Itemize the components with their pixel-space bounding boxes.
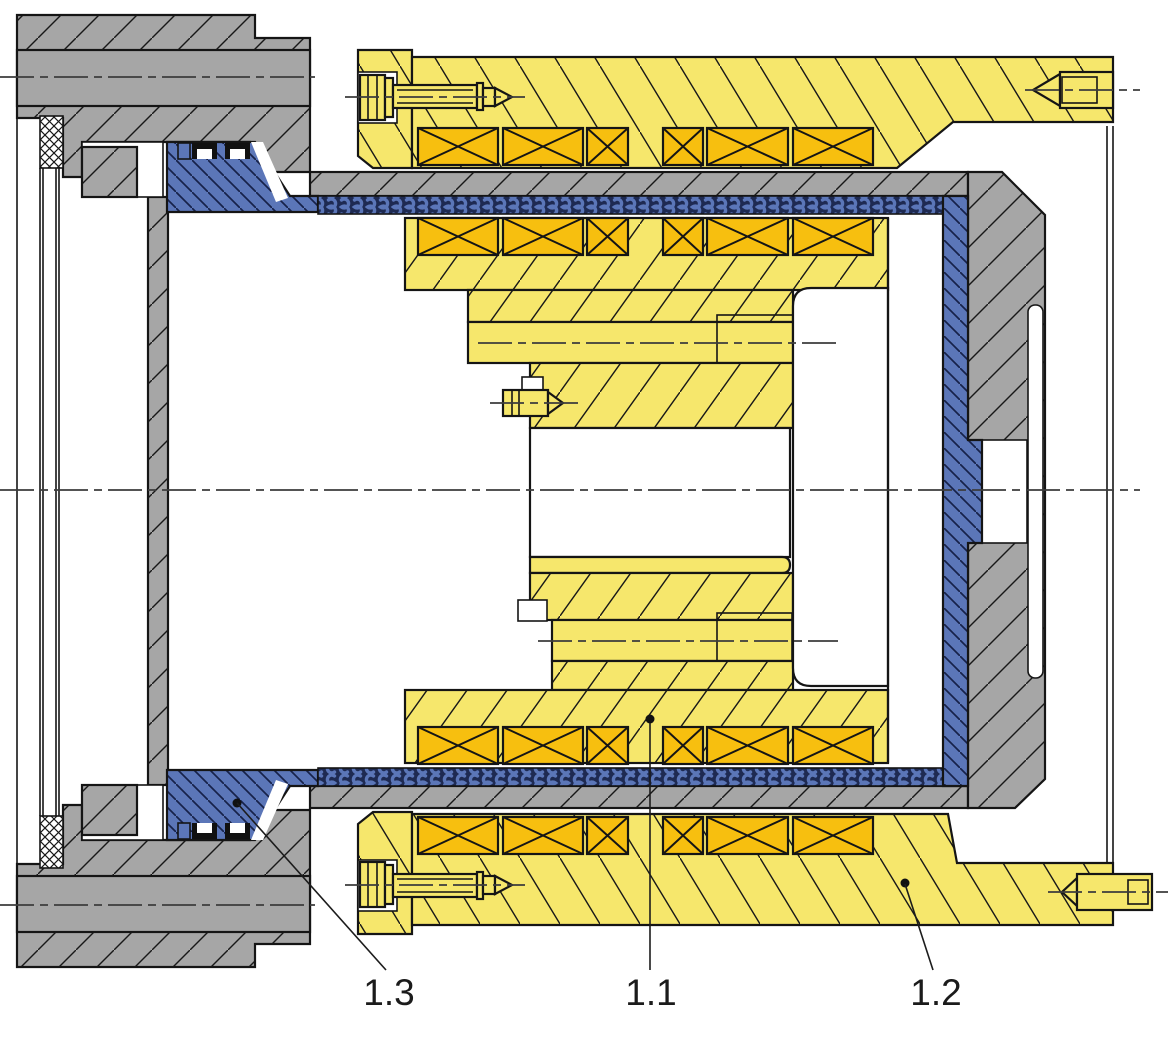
oring-gap <box>230 149 245 159</box>
rotor-bore <box>530 428 790 557</box>
rotor-upper-mid <box>468 290 793 322</box>
label-1-3: 1.3 <box>363 972 414 1013</box>
cooling-channels-bottom <box>318 768 943 786</box>
seal-insert-bottom <box>178 823 190 839</box>
motor-section-drawing: 1.3 1.1 1.2 <box>0 0 1170 1061</box>
shell-bottom-strip <box>310 786 968 808</box>
keyway-band <box>530 557 790 573</box>
oring-gap <box>197 149 212 159</box>
oring-gap <box>230 823 245 833</box>
screw-notch-bottom <box>518 600 547 621</box>
label-1-1: 1.1 <box>625 972 676 1013</box>
cooling-channels-top <box>318 196 943 214</box>
rotor-upper-body <box>530 363 793 428</box>
callout-dot-1-1 <box>646 715 655 724</box>
rotor-recess <box>793 288 888 686</box>
rotor-lower-mid <box>552 661 793 690</box>
flange-bottom-bolt-hole <box>17 876 310 932</box>
top-ring <box>82 147 137 197</box>
seal-ring-top <box>40 116 63 168</box>
oring-gap <box>197 823 212 833</box>
bottom-ring <box>82 785 137 835</box>
seal-insert-top <box>178 143 190 159</box>
wall-center-notch <box>982 440 1027 543</box>
shell-top-strip <box>310 172 968 196</box>
flange-top-bolt-hole <box>17 50 310 106</box>
wall-slot <box>1028 305 1043 678</box>
seal-ring-bottom <box>40 816 63 868</box>
technical-drawing-cross-section: 1.3 1.1 1.2 <box>0 0 1170 1061</box>
flange-inner-wall <box>148 197 168 785</box>
label-1-2: 1.2 <box>910 972 961 1013</box>
